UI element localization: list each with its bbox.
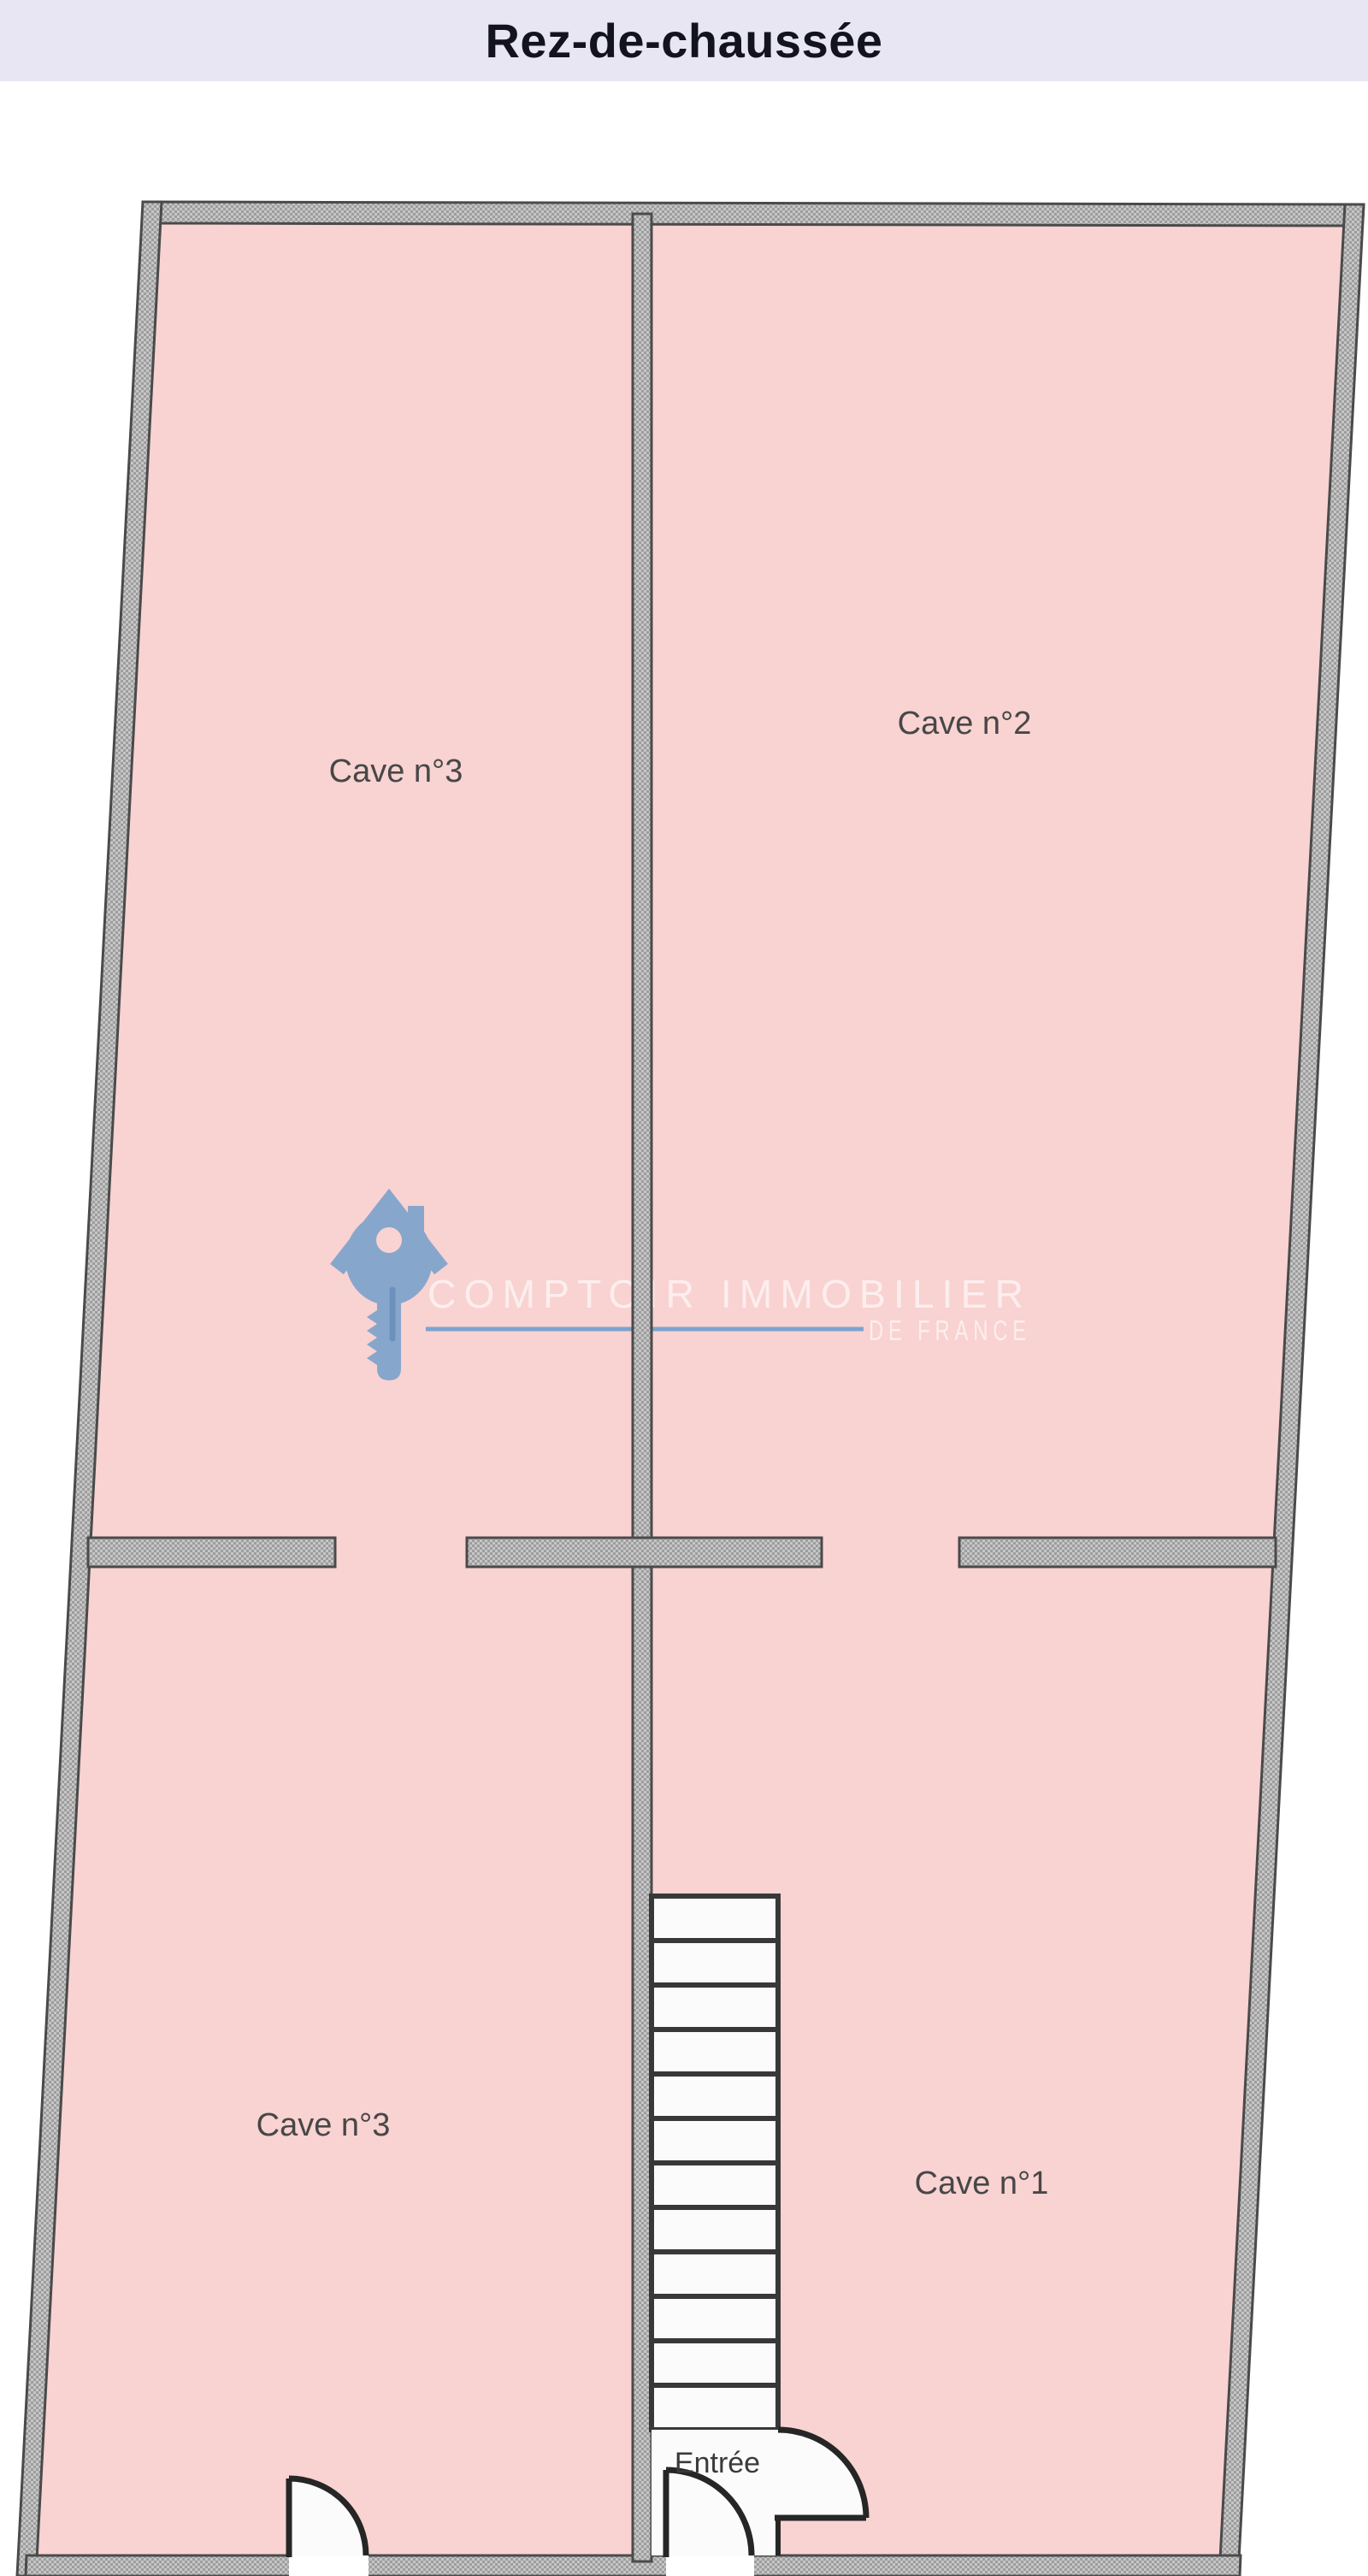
partition-wall-center (467, 1538, 822, 1567)
staircase (652, 1896, 778, 2430)
title-banner: Rez-de-chaussée (0, 0, 1368, 81)
partition-wall-left (88, 1538, 335, 1567)
entrance-wall-opening (666, 2554, 754, 2576)
floorplan-svg: COMPTOIR IMMOBILIER DE FRANCE (0, 0, 1368, 2576)
room-label-cave-3-bottom: Cave n°3 (256, 2107, 391, 2143)
page-title: Rez-de-chaussée (485, 13, 882, 68)
entrance-label: Entrée (675, 2447, 760, 2479)
room-label-cave-3-top: Cave n°3 (329, 753, 463, 789)
partition-wall-right (959, 1538, 1276, 1567)
watermark-line1: COMPTOIR IMMOBILIER (427, 1272, 1031, 1316)
cave-3-wall-opening (289, 2554, 369, 2576)
key-hole (376, 1227, 402, 1253)
central-wall (633, 214, 652, 2561)
room-label-cave-2: Cave n°2 (898, 706, 1032, 741)
outer-wall-top (143, 202, 1364, 226)
room-label-cave-1: Cave n°1 (915, 2165, 1049, 2201)
watermark-line2: DE FRANCE (869, 1315, 1031, 1346)
